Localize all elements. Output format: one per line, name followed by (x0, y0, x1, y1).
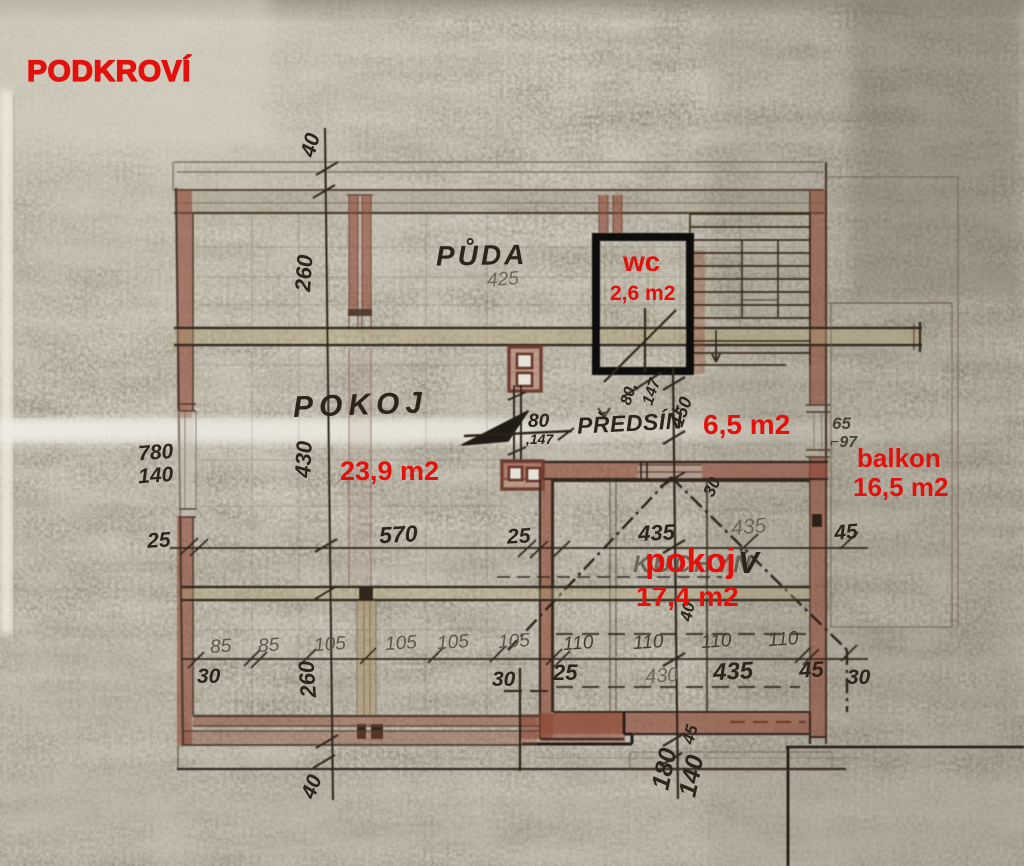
svg-text:105: 105 (313, 633, 347, 656)
svg-text:PŮDA: PŮDA (436, 237, 528, 272)
svg-text:85: 85 (257, 634, 280, 656)
svg-text:pokoj: pokoj (645, 542, 736, 580)
svg-text:140: 140 (137, 463, 174, 488)
svg-text:17,4 m2: 17,4 m2 (636, 581, 739, 612)
svg-text:110: 110 (632, 631, 664, 654)
svg-text:435: 435 (711, 657, 754, 686)
svg-text:65: 65 (832, 414, 851, 433)
svg-text:780: 780 (137, 440, 174, 465)
svg-text:110: 110 (767, 628, 799, 651)
svg-text:PODKROVÍ: PODKROVÍ (27, 54, 191, 88)
svg-text:balkon: balkon (857, 443, 941, 473)
svg-text:45: 45 (832, 520, 859, 545)
svg-text:30: 30 (197, 665, 221, 688)
svg-text:85: 85 (209, 636, 232, 658)
svg-text:⌐97: ⌐97 (830, 434, 858, 451)
svg-text:80: 80 (528, 411, 550, 432)
svg-text:110: 110 (700, 630, 732, 653)
svg-text:25: 25 (552, 660, 578, 685)
svg-text:105: 105 (497, 630, 531, 653)
svg-text:23,9 m2: 23,9 m2 (340, 456, 439, 486)
svg-text:30: 30 (847, 666, 871, 689)
svg-text:V: V (738, 545, 761, 580)
svg-text:25: 25 (505, 524, 531, 548)
svg-text:260: 260 (293, 659, 321, 699)
svg-text:POKOJ: POKOJ (292, 386, 428, 424)
svg-text:430: 430 (290, 440, 317, 480)
svg-text:110: 110 (562, 632, 594, 655)
svg-text:wc: wc (622, 246, 660, 277)
svg-text:6,5 m2: 6,5 m2 (703, 409, 790, 440)
svg-text:25: 25 (145, 528, 171, 553)
svg-text:,147: ,147 (525, 431, 554, 447)
svg-text:105: 105 (384, 632, 418, 655)
svg-text:2,6 m2: 2,6 m2 (610, 282, 675, 305)
svg-text:30: 30 (492, 668, 516, 691)
svg-text:430: 430 (644, 664, 679, 688)
svg-text:105: 105 (436, 631, 470, 654)
svg-text:45: 45 (797, 656, 825, 682)
svg-text:570: 570 (378, 520, 418, 548)
svg-text:260: 260 (290, 253, 318, 293)
svg-text:425: 425 (486, 268, 520, 291)
svg-text:435: 435 (730, 514, 767, 540)
svg-text:16,5 m2: 16,5 m2 (853, 472, 948, 502)
